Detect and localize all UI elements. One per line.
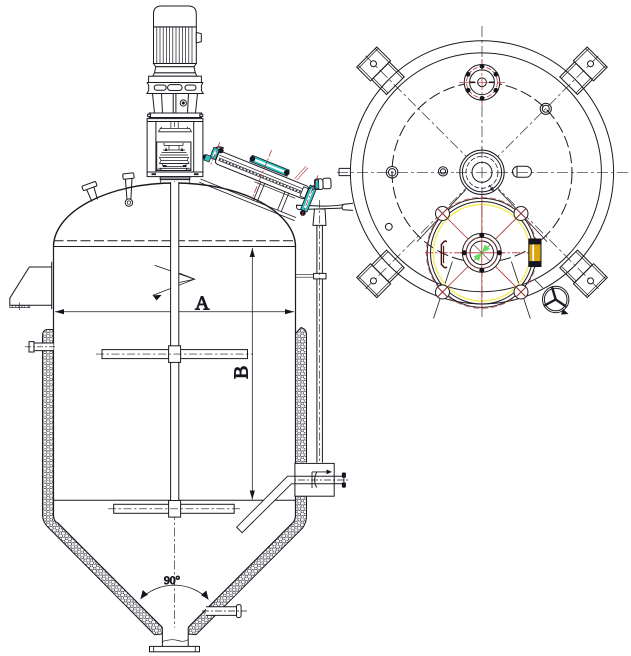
svg-text:A: A: [195, 293, 210, 315]
svg-text:B: B: [231, 366, 253, 379]
svg-text:90°: 90°: [164, 575, 181, 587]
